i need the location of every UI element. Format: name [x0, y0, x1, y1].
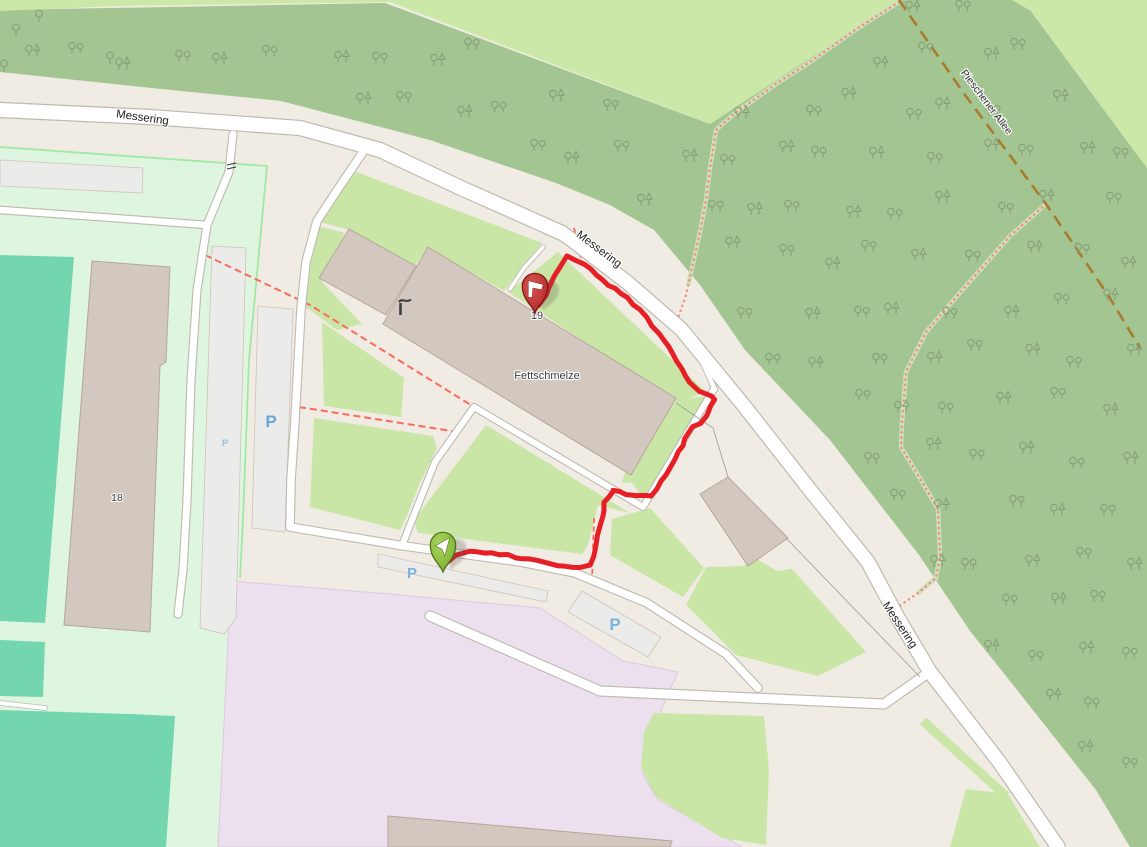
svg-text:P: P [609, 615, 620, 634]
svg-text:Fettschmelze: Fettschmelze [514, 370, 579, 382]
svg-text:P: P [407, 565, 417, 582]
svg-text:P: P [222, 438, 228, 448]
svg-text:19: 19 [531, 310, 543, 322]
svg-text:P: P [265, 412, 276, 431]
svg-text:18: 18 [111, 492, 123, 504]
